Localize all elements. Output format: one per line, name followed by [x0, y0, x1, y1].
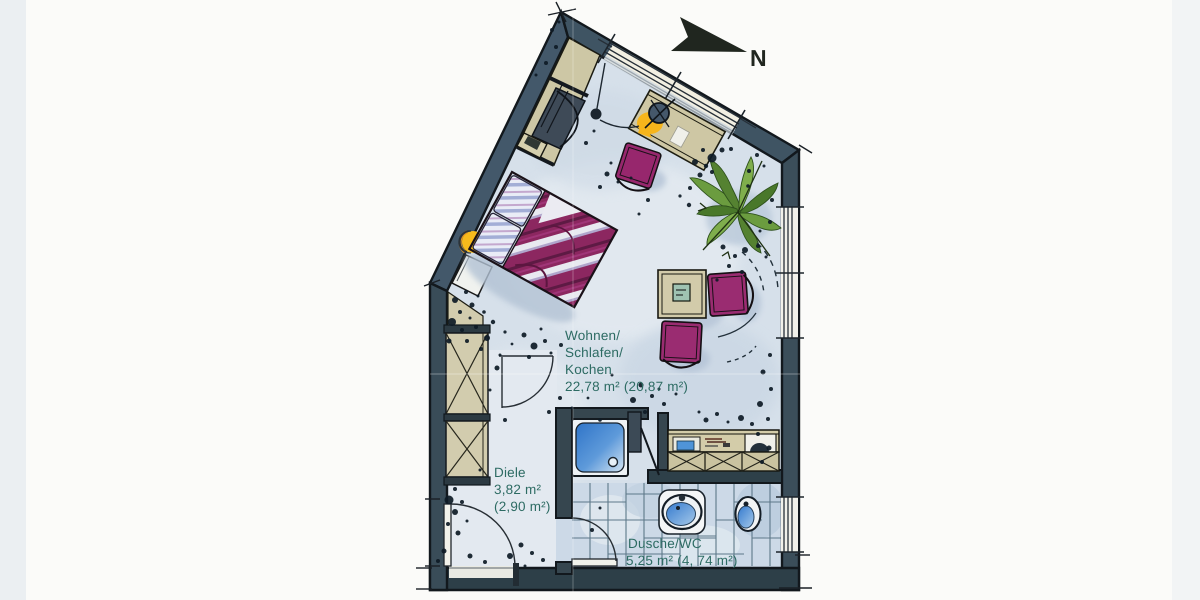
- svg-text:(2,90 m²): (2,90 m²): [494, 499, 551, 514]
- svg-text:5,25 m² (4, 74 m²): 5,25 m² (4, 74 m²): [626, 553, 738, 568]
- svg-text:Diele: Diele: [494, 465, 526, 480]
- svg-text:3,82 m²: 3,82 m²: [494, 482, 541, 497]
- svg-text:Dusche/WC: Dusche/WC: [628, 536, 702, 551]
- svg-text:22,78 m² (20,87 m²): 22,78 m² (20,87 m²): [565, 379, 688, 394]
- svg-text:Wohnen/: Wohnen/: [565, 328, 620, 343]
- svg-text:Kochen: Kochen: [565, 362, 612, 377]
- svg-text:N: N: [750, 45, 767, 71]
- svg-text:Schlafen/: Schlafen/: [565, 345, 623, 360]
